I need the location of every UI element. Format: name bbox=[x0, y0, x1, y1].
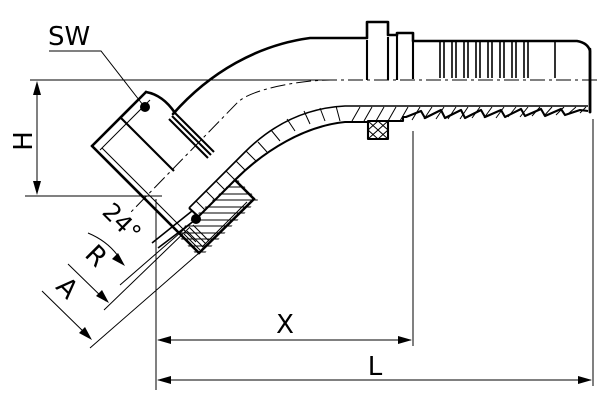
nut-face-edge bbox=[92, 146, 199, 253]
barb-ridges bbox=[440, 41, 555, 78]
h-label: H bbox=[9, 131, 39, 151]
l-label: L bbox=[368, 352, 383, 382]
drawing-page: H X L SW 24° R A bbox=[0, 0, 600, 400]
collar-edges bbox=[367, 35, 413, 80]
o-ring-seal bbox=[368, 121, 388, 139]
hose-tail bbox=[173, 22, 590, 217]
a-label: A bbox=[50, 271, 84, 305]
dim-length-L: L bbox=[157, 352, 592, 384]
neck-washer bbox=[169, 113, 214, 158]
sw-label: SW bbox=[48, 22, 90, 52]
sw-leader-line bbox=[49, 51, 143, 105]
x-label: X bbox=[276, 310, 294, 340]
nut-back-shoulder bbox=[146, 92, 175, 113]
l-arrow-right bbox=[578, 376, 592, 384]
technical-drawing: H X L SW 24° R A bbox=[0, 0, 600, 400]
r-arrow bbox=[96, 290, 109, 303]
hex-flat-boundary bbox=[120, 117, 174, 171]
nut-top-flat bbox=[92, 92, 146, 146]
nut-back-lower-edge bbox=[235, 180, 254, 199]
x-arrow-right bbox=[398, 336, 412, 344]
sw-leader-dot bbox=[140, 102, 150, 112]
x-arrow-left bbox=[157, 336, 171, 344]
extension-lines bbox=[156, 119, 593, 390]
tube-wall-outer-edge bbox=[198, 122, 368, 217]
centerlines bbox=[30, 80, 597, 212]
dim-cutoff-X: X bbox=[157, 310, 412, 344]
nut-section-hatching bbox=[150, 181, 280, 252]
h-arrow-down bbox=[33, 181, 41, 195]
angle-arrow bbox=[112, 253, 125, 266]
leader-SW: SW bbox=[48, 22, 150, 112]
dim-thread-R: R bbox=[68, 239, 113, 303]
angle-label: 24° bbox=[97, 197, 147, 247]
dim-seal-A: A bbox=[42, 271, 92, 340]
l-arrow-left bbox=[157, 376, 171, 384]
h-arrow-up bbox=[33, 81, 41, 95]
